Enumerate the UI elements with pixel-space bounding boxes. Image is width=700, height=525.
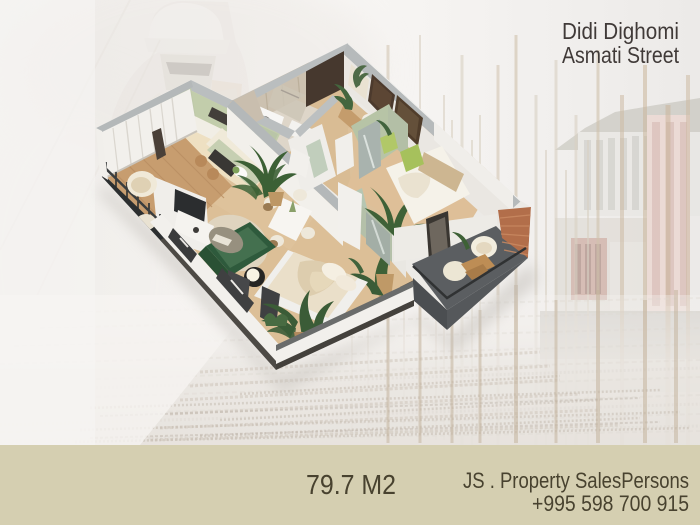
svg-text:79.7 M2: 79.7 M2 [306,469,396,500]
svg-text:Asmati Street: Asmati Street [562,42,680,68]
svg-text:+995 598 700 915: +995 598 700 915 [532,491,689,516]
svg-text:Didi Dighomi: Didi Dighomi [562,18,679,44]
svg-text:JS . Property SalesPersons: JS . Property SalesPersons [463,468,689,493]
